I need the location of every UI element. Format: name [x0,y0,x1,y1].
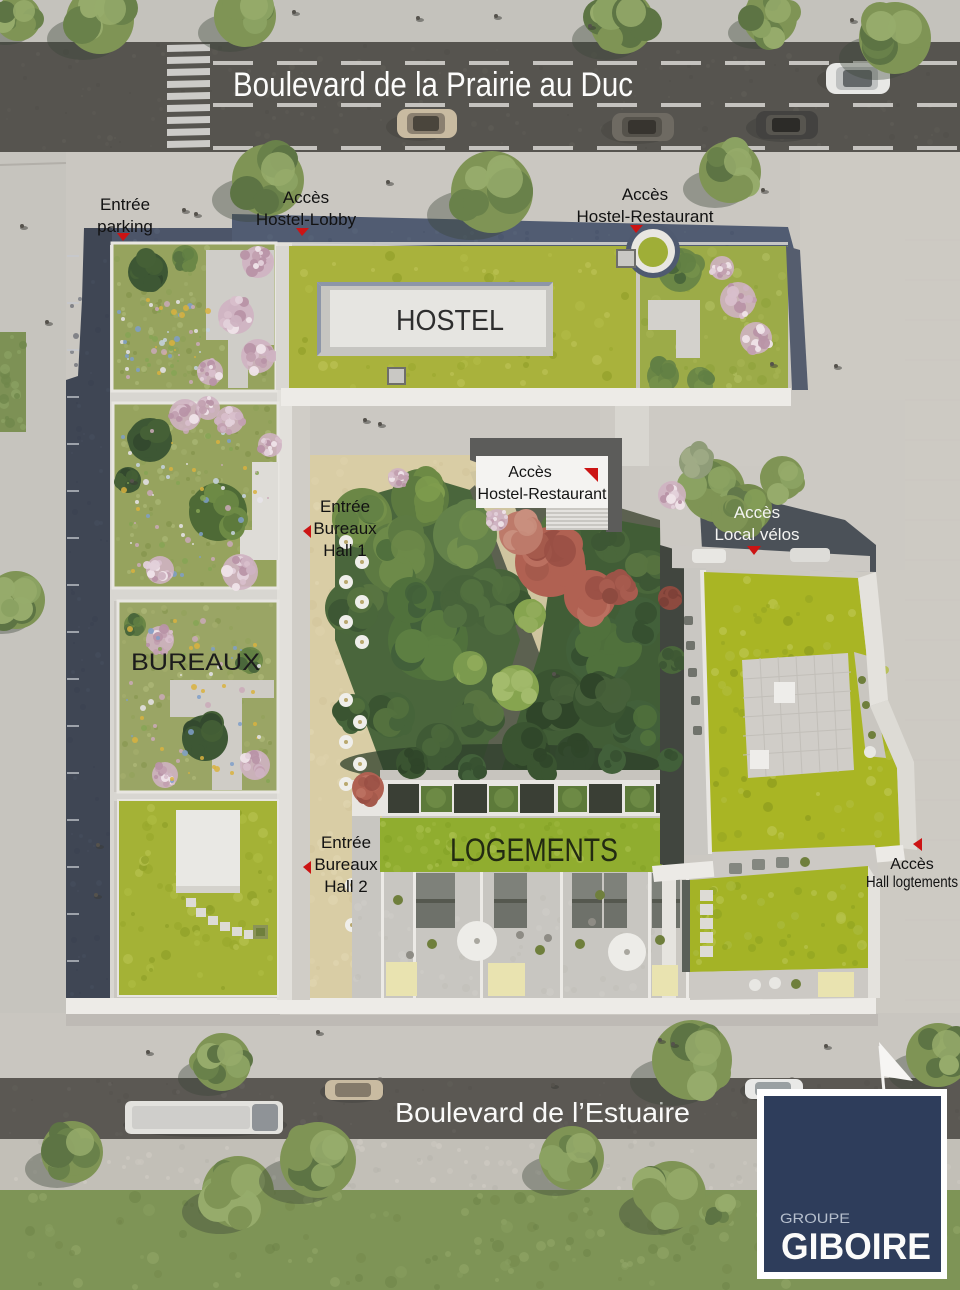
svg-text:Hall 2: Hall 2 [324,877,367,896]
svg-text:Hostel-Lobby: Hostel-Lobby [256,210,357,229]
svg-text:Accès: Accès [622,185,668,204]
svg-text:Hostel-Restaurant: Hostel-Restaurant [576,207,713,226]
svg-text:Bureaux: Bureaux [314,855,378,874]
svg-text:LOGEMENTS: LOGEMENTS [450,832,618,868]
svg-text:Hall 1: Hall 1 [323,541,366,560]
svg-text:Boulevard de la Prairie au Duc: Boulevard de la Prairie au Duc [233,66,633,104]
svg-text:GROUPE: GROUPE [780,1210,850,1226]
svg-text:Local vélos: Local vélos [714,525,799,544]
svg-text:HOSTEL: HOSTEL [396,305,504,337]
svg-text:Accès: Accès [508,464,552,481]
svg-text:Hall logtements: Hall logtements [866,874,958,891]
svg-text:Accès: Accès [734,503,780,522]
svg-text:GIBOIRE: GIBOIRE [781,1226,931,1267]
svg-text:BUREAUX: BUREAUX [131,649,260,676]
svg-text:Entrée: Entrée [100,195,150,214]
svg-text:Entrée: Entrée [320,497,370,516]
svg-text:Accès: Accès [283,188,329,207]
svg-text:Entrée: Entrée [321,833,371,852]
svg-text:Boulevard de l’Estuaire: Boulevard de l’Estuaire [395,1097,690,1128]
svg-text:Bureaux: Bureaux [313,519,377,538]
svg-text:Hostel-Restaurant: Hostel-Restaurant [478,486,608,503]
svg-text:Accès: Accès [890,856,934,873]
